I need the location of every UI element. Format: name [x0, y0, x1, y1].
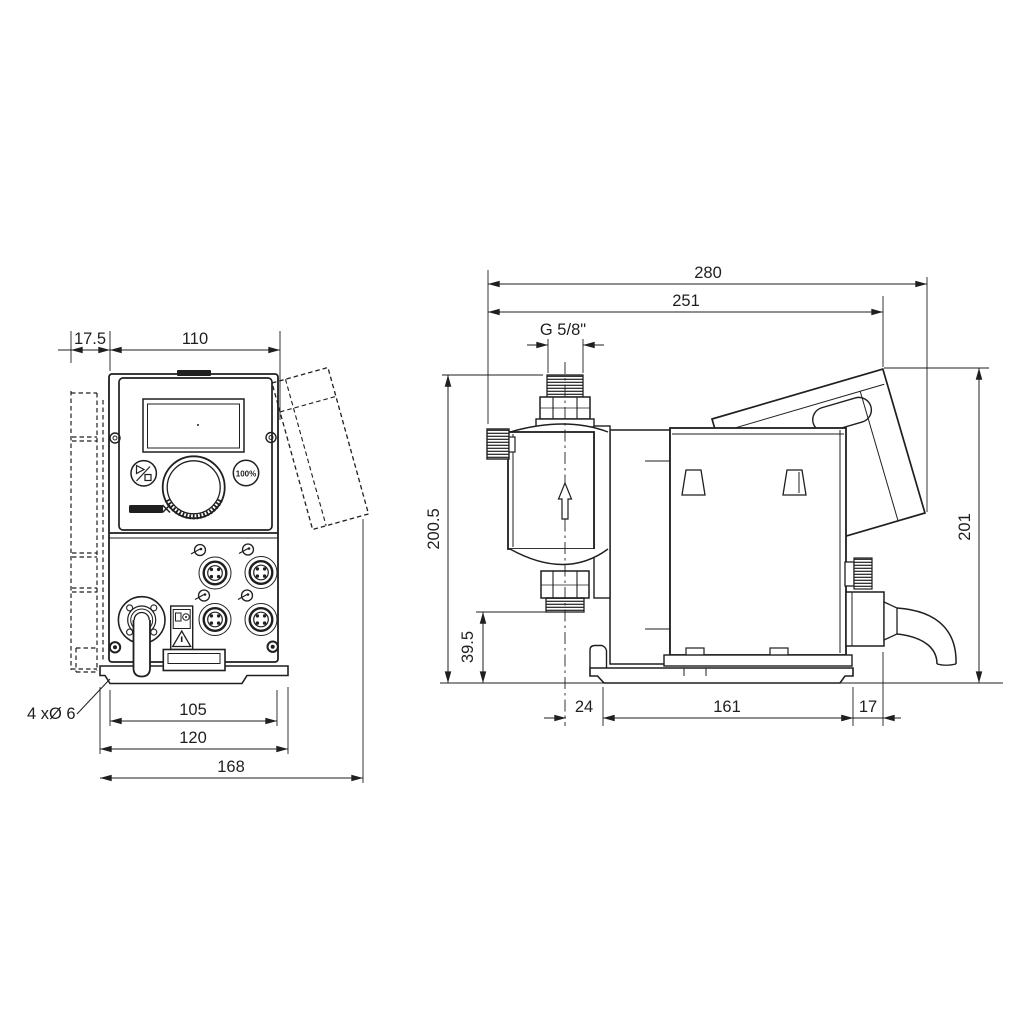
- dosing-pump-dimensional-drawing: 100%: [0, 0, 1024, 1024]
- dim-overall-width: 168: [217, 758, 245, 776]
- dim-overall-height: 201: [956, 513, 974, 541]
- wall-bracket-hidden-outline: [71, 391, 103, 672]
- mounting-clip: [682, 470, 705, 495]
- head-body: [508, 432, 594, 549]
- dim-plate-to-rear: 17: [859, 698, 877, 716]
- dim-plate-width: 120: [179, 729, 207, 747]
- dim-body-depth: 251: [672, 292, 700, 310]
- top-tab: [177, 370, 211, 376]
- boost-button-label: 100%: [236, 470, 256, 479]
- dim-body-width: 110: [182, 330, 208, 348]
- rail-latch: [163, 650, 225, 671]
- front-view: 100%: [27, 330, 369, 783]
- dim-plate-depth: 161: [713, 698, 741, 716]
- dim-bracket-offset: 17.5: [74, 330, 106, 348]
- control-panel: 100%: [119, 378, 272, 530]
- cover-flap-phantom-front: [272, 368, 369, 530]
- dim-height-to-valve-top: 200.5: [425, 508, 443, 549]
- cable-gland: [845, 558, 956, 665]
- thread-size-label: G 5/8": [540, 321, 586, 339]
- technical-drawing-canvas: 100%: [0, 0, 1024, 1024]
- dim-overall-depth: 280: [694, 264, 722, 282]
- dim-hole-spacing: 105: [179, 701, 207, 719]
- display-dot: [197, 424, 199, 426]
- drain-tube: [134, 620, 151, 677]
- priming-knob: [487, 429, 509, 459]
- dim-valve-bottom-height: 39.5: [459, 631, 477, 663]
- mounting-clip: [783, 470, 806, 495]
- motor-housing: [610, 428, 852, 666]
- side-view: 280 251 G 5/8" 200.5 39.5 24 161 1: [425, 264, 1003, 726]
- mounting-holes-label: 4 xØ 6: [27, 705, 76, 723]
- dim-head-to-plate: 24: [575, 698, 593, 716]
- rear-thread-stub: [854, 558, 872, 589]
